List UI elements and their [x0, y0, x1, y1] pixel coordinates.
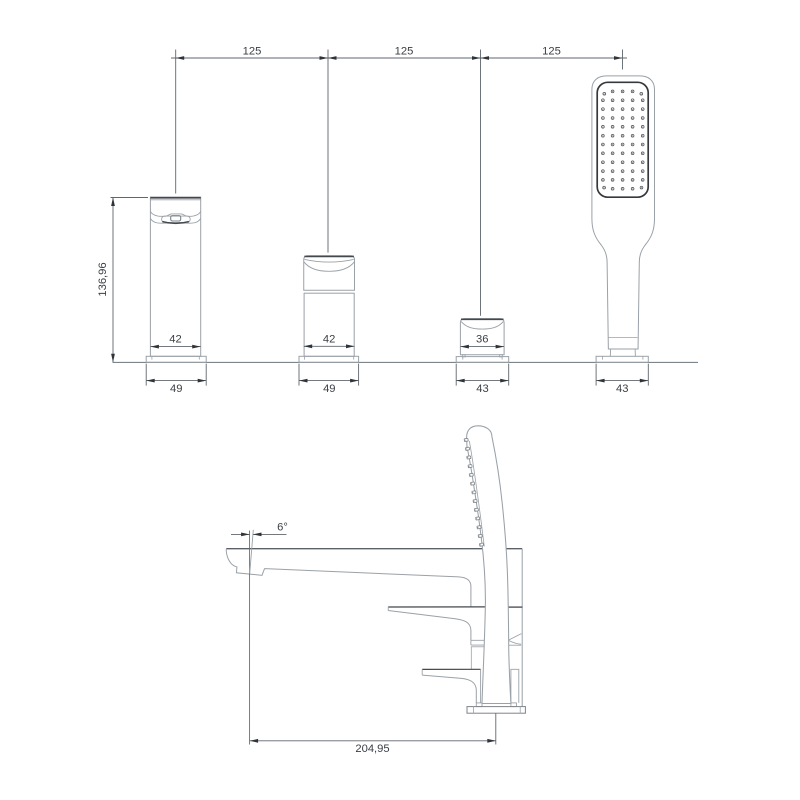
- svg-text:42: 42: [169, 334, 181, 346]
- svg-text:49: 49: [170, 383, 182, 395]
- svg-text:42: 42: [323, 333, 335, 345]
- svg-text:136,96: 136,96: [97, 262, 109, 296]
- svg-text:125: 125: [243, 46, 262, 58]
- svg-text:204,95: 204,95: [355, 743, 389, 755]
- svg-text:49: 49: [323, 383, 335, 395]
- svg-text:125: 125: [395, 46, 414, 58]
- svg-text:43: 43: [616, 383, 628, 395]
- svg-text:36: 36: [476, 334, 488, 346]
- svg-text:125: 125: [542, 46, 561, 58]
- svg-text:6°: 6°: [277, 522, 288, 534]
- svg-text:43: 43: [476, 383, 488, 395]
